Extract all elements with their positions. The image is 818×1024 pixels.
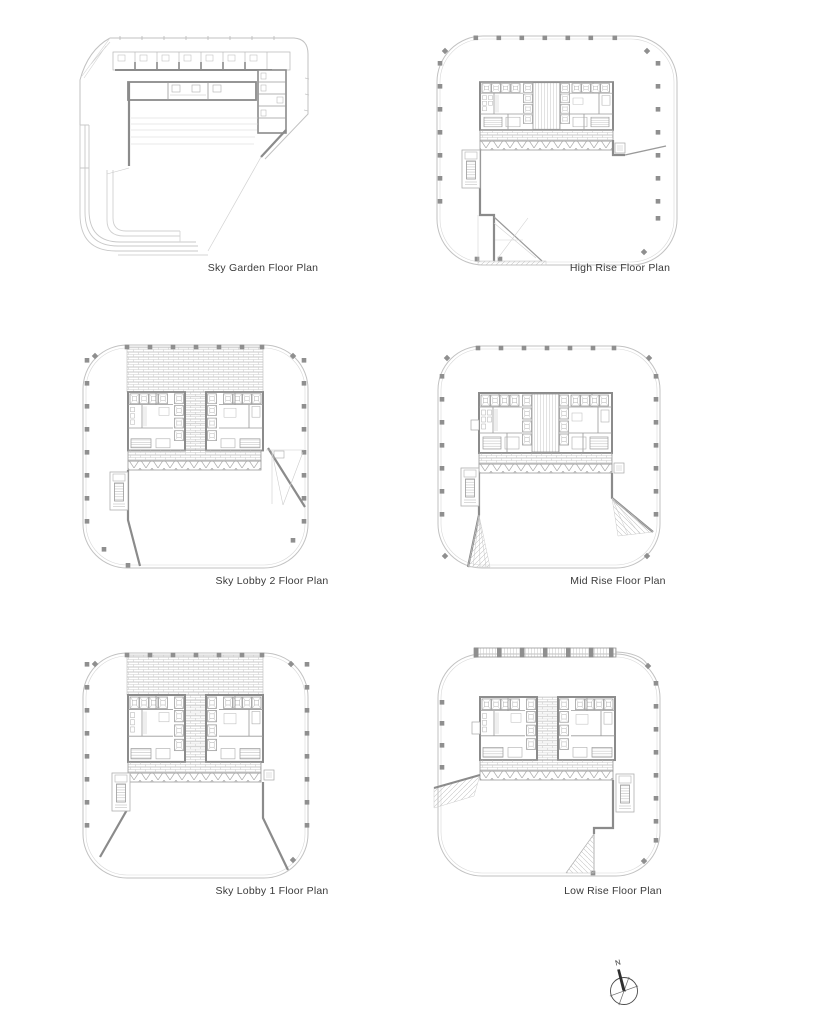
sky-garden-svg xyxy=(58,18,324,268)
low-rise-floor-plan-drawing xyxy=(428,638,704,890)
mid-rise-bump xyxy=(614,463,624,473)
mid-rise-core-bump xyxy=(471,420,479,430)
low-rise-escalator xyxy=(616,774,634,812)
low-rise-bottom-terrace xyxy=(566,834,594,873)
sky-garden-label: Sky Garden Floor Plan xyxy=(178,261,348,275)
compass-needle xyxy=(617,969,626,991)
sky-lobby-2-garden-void xyxy=(127,347,263,392)
low-rise-svg xyxy=(428,638,704,890)
sky-garden-terrace xyxy=(131,118,258,144)
north-arrow-svg: N xyxy=(598,951,650,1013)
high-rise-svg xyxy=(428,18,694,268)
sky-lobby-2-label: Sky Lobby 2 Floor Plan xyxy=(187,574,357,588)
sky-lobby-2-floor-plan-drawing xyxy=(76,332,322,578)
mid-rise-floor-plan-drawing xyxy=(428,336,694,582)
high-rise-bottom-terrace xyxy=(478,217,546,265)
sky-garden-mechanical-rooms xyxy=(113,52,290,70)
high-rise-floor-plan-drawing xyxy=(428,18,694,268)
sky-garden-roof-path xyxy=(80,125,208,255)
compass-north-label: N xyxy=(614,958,621,968)
sky-lobby-1-corridor xyxy=(128,762,261,782)
sky-lobby-1-core xyxy=(128,695,263,762)
sky-garden-left-wall-return xyxy=(107,168,129,174)
sky-lobby-1-label: Sky Lobby 1 Floor Plan xyxy=(187,884,357,898)
high-rise-corridor xyxy=(480,130,613,150)
sky-lobby-2-svg xyxy=(76,332,322,578)
low-rise-label: Low Rise Floor Plan xyxy=(528,884,698,898)
sky-garden-corridor-block xyxy=(128,82,256,100)
high-rise-label: High Rise Floor Plan xyxy=(535,261,705,275)
mid-rise-corridor xyxy=(479,453,612,473)
floor-plan-sheet: Sky Garden Floor Plan High Rise Floor Pl… xyxy=(0,0,818,1024)
sky-lobby-2-corridor xyxy=(128,450,261,470)
mid-rise-label: Mid Rise Floor Plan xyxy=(533,574,703,588)
mid-rise-escalator xyxy=(461,468,479,506)
sky-lobby-1-escalator xyxy=(112,773,130,811)
high-rise-walls xyxy=(478,140,666,261)
low-rise-core-bump xyxy=(472,722,480,734)
north-arrow-compass: N xyxy=(598,951,650,1013)
low-rise-core xyxy=(480,697,615,760)
sky-lobby-2-escalator xyxy=(110,472,128,510)
sky-lobby-1-floor-plan-drawing xyxy=(76,642,322,888)
sky-garden-floor-plan-drawing xyxy=(58,18,324,268)
sky-lobby-2-core xyxy=(128,392,263,451)
high-rise-core xyxy=(480,82,613,130)
mid-rise-core xyxy=(479,393,612,453)
low-rise-corridor xyxy=(480,760,613,780)
sky-lobby-1-svg xyxy=(76,642,322,888)
low-rise-walls xyxy=(594,780,613,873)
mid-rise-svg xyxy=(428,336,694,582)
high-rise-escalator xyxy=(462,150,480,188)
low-rise-louver-band xyxy=(474,648,616,658)
sky-lobby-1-garden-void xyxy=(127,655,263,695)
sky-lobby-1-bump xyxy=(264,770,274,780)
